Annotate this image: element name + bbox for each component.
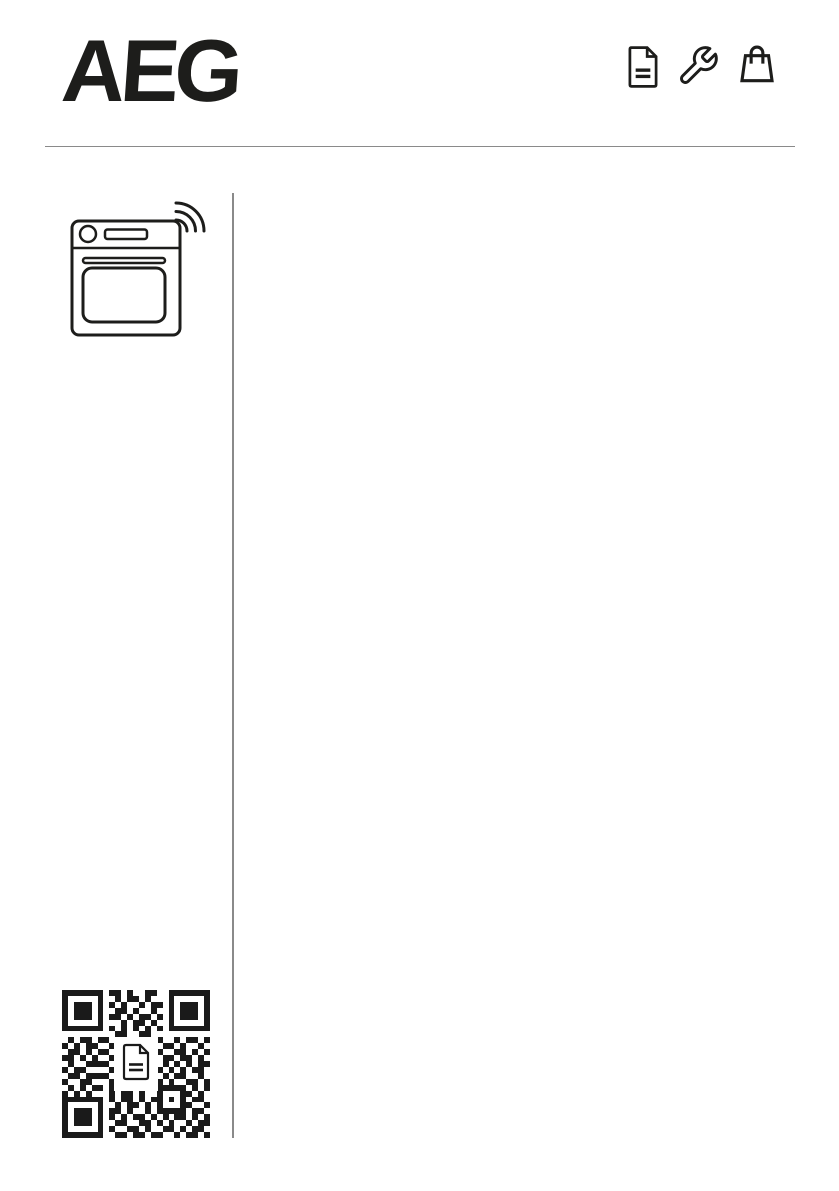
wrench-icon (676, 43, 720, 89)
document-icon (625, 45, 661, 89)
header-icon-row (625, 40, 779, 89)
oven-with-wifi-icon (64, 184, 214, 344)
qr-center-badge (114, 1037, 158, 1091)
qr-code (62, 990, 210, 1138)
aeg-logo: AEG (60, 38, 240, 104)
shopping-bag-icon (735, 40, 779, 89)
manual-cover-page: AEG (0, 0, 839, 1191)
header-divider (45, 146, 795, 147)
document-icon (121, 1043, 151, 1086)
content-divider (232, 193, 234, 1138)
